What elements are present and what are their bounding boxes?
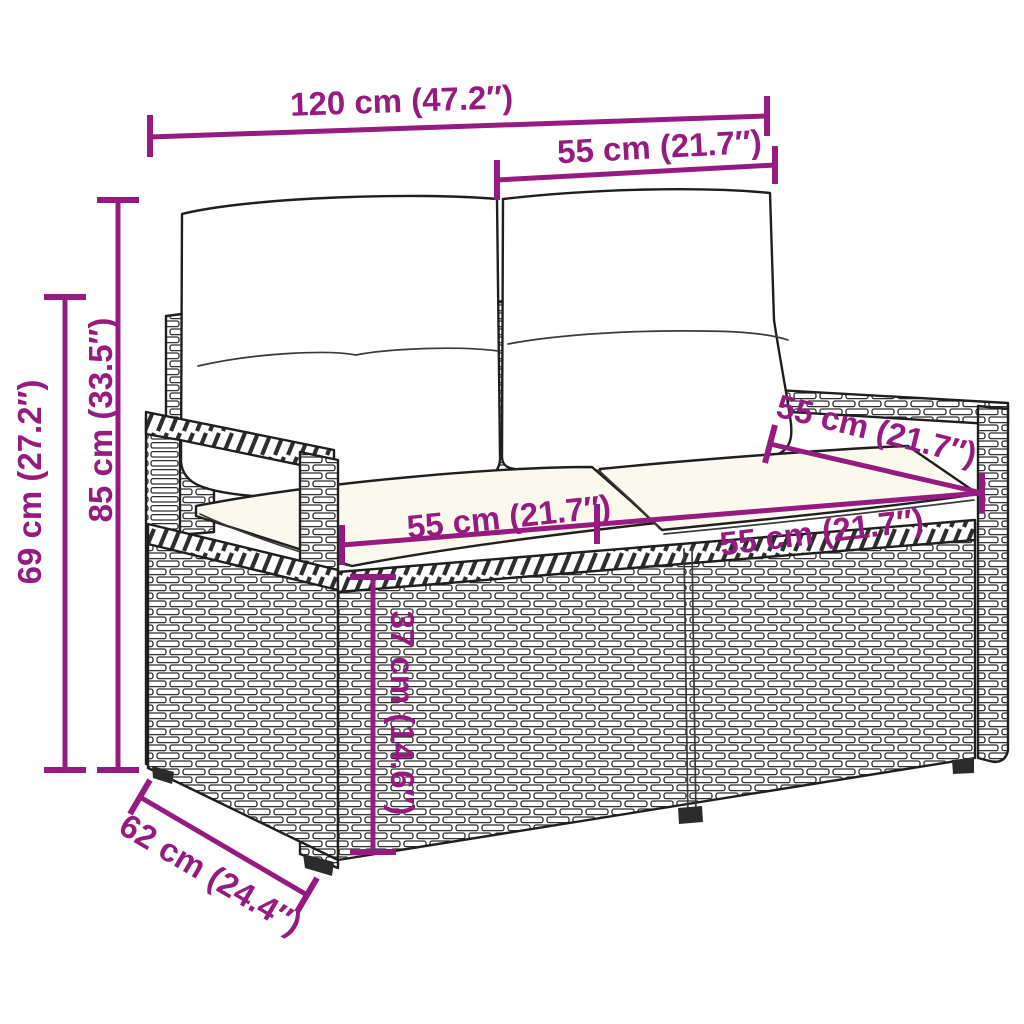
dim-back-cushion-width-label: 55 cm (21.7″) — [556, 123, 762, 171]
dim-armrest-height-label: 69 cm (27.2″) — [11, 380, 48, 585]
dim-seat-height-label: 37 cm (14.6″) — [384, 611, 421, 816]
foot-center — [678, 806, 703, 824]
dim-total-height: 85 cm (33.5″) — [82, 200, 139, 770]
garden-sofa-dimension-drawing: 120 cm (47.2″) 55 cm (21.7″) 85 cm (33.5… — [0, 0, 1024, 1024]
dim-total-height-label: 85 cm (33.5″) — [82, 318, 119, 523]
back-cushion-left — [181, 196, 500, 497]
foot-right — [952, 758, 974, 774]
right-arm-post — [978, 406, 1008, 762]
product-dimension-diagram: 120 cm (47.2″) 55 cm (21.7″) 85 cm (33.5… — [0, 0, 1024, 1024]
dim-back-cushion-width-line — [497, 165, 775, 180]
dim-armrest-height: 69 cm (27.2″) — [11, 297, 86, 770]
dim-overall-width-label: 120 cm (47.2″) — [289, 78, 513, 123]
dim-back-cushion-width: 55 cm (21.7″) — [497, 123, 775, 200]
